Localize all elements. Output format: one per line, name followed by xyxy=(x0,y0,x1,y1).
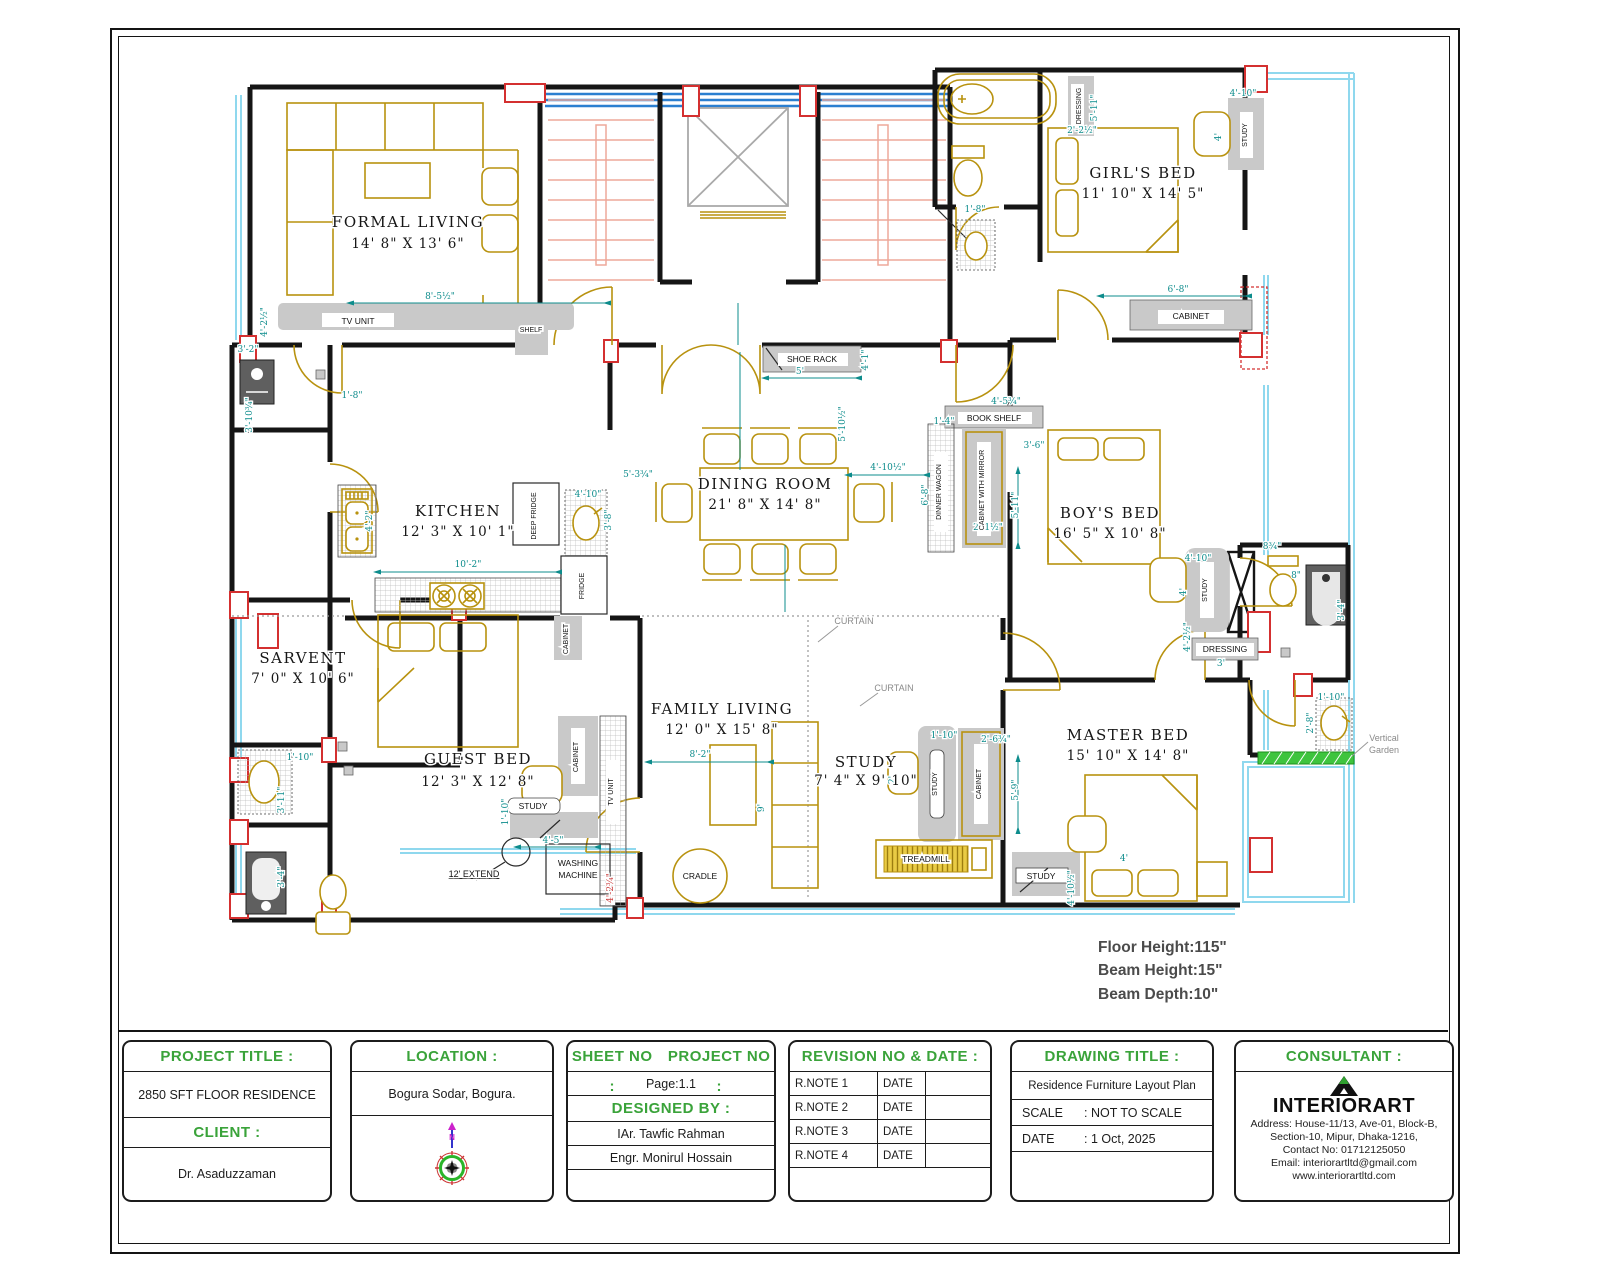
date-value: : 1 Oct, 2025 xyxy=(1084,1132,1156,1146)
svg-text:4'-10½": 4'-10½" xyxy=(1066,870,1077,906)
svg-text:TREADMILL: TREADMILL xyxy=(902,854,950,864)
brand-name: INTERIORART xyxy=(1273,1096,1415,1116)
staircase-right xyxy=(822,100,946,280)
svg-text:CABINET: CABINET xyxy=(563,623,570,654)
svg-text:4'-5": 4'-5" xyxy=(542,836,563,846)
consultant-heading: CONSULTANT : xyxy=(1236,1042,1452,1072)
svg-text:4'-1": 4'-1" xyxy=(861,349,871,370)
logo-interiorart: INTERIORART xyxy=(1236,1072,1452,1116)
svg-text:FRIDGE: FRIDGE xyxy=(579,572,586,599)
room-label-formal-living: FORMAL LIVING14' 8" X 13' 6" xyxy=(332,213,484,252)
svg-text:CABINET: CABINET xyxy=(976,768,983,799)
panel-project-title: PROJECT TITLE : 2850 SFT FLOOR RESIDENCE… xyxy=(122,1040,332,1202)
bed-guest xyxy=(378,615,518,747)
svg-text:10'-2": 10'-2" xyxy=(455,560,482,570)
study-desk-girls xyxy=(1194,98,1264,170)
svg-text:2'-6¾": 2'-6¾" xyxy=(981,734,1011,745)
lift xyxy=(688,108,788,218)
note-floor-height: Floor Height:115" xyxy=(1098,936,1398,959)
svg-text:MASTER BED: MASTER BED xyxy=(1067,726,1189,744)
svg-text:11' 10" X 14' 5": 11' 10" X 14' 5" xyxy=(1082,186,1205,202)
svg-text:SHELF: SHELF xyxy=(520,327,543,334)
drawing-title-value: Residence Furniture Layout Plan xyxy=(1012,1072,1212,1100)
svg-text:1'-10": 1'-10" xyxy=(287,753,314,763)
svg-text:SARVENT: SARVENT xyxy=(259,649,346,667)
svg-text:3'-6": 3'-6" xyxy=(1023,441,1044,451)
scale-value: : NOT TO SCALE xyxy=(1084,1106,1182,1120)
svg-text:Garden: Garden xyxy=(1369,745,1399,755)
designed-by-heading: DESIGNED BY : xyxy=(568,1096,774,1122)
svg-text:8'-2": 8'-2" xyxy=(689,750,710,760)
svg-text:CRADLE: CRADLE xyxy=(683,871,718,881)
sheet-no-heading: SHEET NO : xyxy=(568,1042,656,1071)
panel-drawing-title: DRAWING TITLE : Residence Furniture Layo… xyxy=(1010,1040,1214,1202)
svg-text:1'-10": 1'-10" xyxy=(1318,693,1345,703)
svg-text:1'-8": 1'-8" xyxy=(964,205,985,215)
svg-text:KITCHEN: KITCHEN xyxy=(415,502,501,520)
bed-boys xyxy=(1048,430,1160,564)
svg-text:4'-10": 4'-10" xyxy=(1230,89,1257,99)
svg-text:BOY'S BED: BOY'S BED xyxy=(1060,504,1160,522)
svg-text:5'-10½": 5'-10½" xyxy=(837,406,848,442)
panel-location: LOCATION : Bogura Sodar, Bogura. N xyxy=(350,1040,554,1202)
room-label-dining: DINING ROOM21' 8" X 14' 8" xyxy=(698,475,833,513)
svg-text:DRESSING: DRESSING xyxy=(1076,88,1083,125)
designer-1: IAr. Tawfic Rahman xyxy=(568,1122,774,1146)
svg-text:3'-11": 3'-11" xyxy=(277,787,287,814)
revision-row: R.NOTE 2 DATE xyxy=(790,1096,990,1120)
svg-text:4'-2": 4'-2" xyxy=(365,510,375,531)
svg-text:1'-8": 1'-8" xyxy=(341,391,362,401)
svg-text:21' 8" X 14' 8": 21' 8" X 14' 8" xyxy=(708,497,821,513)
svg-text:4'-5¾": 4'-5¾" xyxy=(991,396,1021,407)
svg-text:4': 4' xyxy=(1179,588,1189,596)
logo-triangle-icon xyxy=(1330,1076,1358,1096)
svg-text:DINNER WAGON: DINNER WAGON xyxy=(936,464,943,520)
consultant-address-2: Section-10, Mipur, Dhaka-1216, xyxy=(1236,1131,1452,1144)
svg-text:15' 10" X 14' 8": 15' 10" X 14' 8" xyxy=(1067,748,1190,764)
svg-text:3'-4": 3'-4" xyxy=(1337,599,1347,620)
designer-2: Engr. Monirul Hossain xyxy=(568,1146,774,1170)
svg-text:MACHINE: MACHINE xyxy=(558,870,598,880)
svg-text:7' 0" X 10' 6": 7' 0" X 10' 6" xyxy=(251,671,355,687)
svg-text:STUDY: STUDY xyxy=(835,753,897,771)
location-value: Bogura Sodar, Bogura. xyxy=(352,1072,552,1116)
svg-text:4'-10": 4'-10" xyxy=(1185,554,1212,564)
svg-text:DRESSING: DRESSING xyxy=(1203,644,1247,654)
location-heading: LOCATION : xyxy=(352,1042,552,1072)
room-label-kitchen: KITCHEN12' 3" X 10' 1" xyxy=(401,502,514,540)
svg-text:GUEST BED: GUEST BED xyxy=(424,750,532,768)
svg-text:CABINET: CABINET xyxy=(1173,311,1210,321)
svg-text:STUDY: STUDY xyxy=(1202,578,1209,602)
svg-text:8'-5½": 8'-5½" xyxy=(425,291,455,302)
svg-text:12' 3" X 10' 1": 12' 3" X 10' 1" xyxy=(401,524,514,540)
svg-text:6'-8": 6'-8" xyxy=(921,484,931,505)
svg-text:DEEP FRIDGE: DEEP FRIDGE xyxy=(531,492,538,540)
room-label-guest-bed: GUEST BED12' 3" X 12' 8" xyxy=(421,750,534,790)
svg-text:STUDY: STUDY xyxy=(932,772,939,796)
svg-text:STUDY: STUDY xyxy=(1242,123,1249,147)
svg-text:2'-8": 2'-8" xyxy=(1306,712,1316,733)
svg-text:TV UNIT: TV UNIT xyxy=(608,778,615,806)
svg-text:1'-4": 1'-4" xyxy=(933,417,954,427)
svg-text:3'-2": 3'-2" xyxy=(237,345,258,355)
svg-text:3'-10¾": 3'-10¾" xyxy=(244,397,255,433)
height-notes: Floor Height:115" Beam Height:15" Beam D… xyxy=(1098,936,1398,1006)
svg-text:CABINET: CABINET xyxy=(573,741,580,772)
svg-text:SHOE RACK: SHOE RACK xyxy=(787,354,837,364)
svg-text:5'-3¾": 5'-3¾" xyxy=(623,469,653,480)
panel-consultant: CONSULTANT : INTERIORART Address: House-… xyxy=(1234,1040,1454,1202)
svg-text:1'-10": 1'-10" xyxy=(931,731,958,741)
svg-text:Vertical: Vertical xyxy=(1369,733,1399,743)
sofa-formal-living xyxy=(287,103,518,310)
svg-text:7' 4" X 9' 10": 7' 4" X 9' 10" xyxy=(814,773,918,789)
compass-icon: N xyxy=(429,1122,475,1194)
svg-text:12' 3" X 12' 8": 12' 3" X 12' 8" xyxy=(421,774,534,790)
panel-sheet-no: SHEET NO : PROJECT NO : Page:1.1 DESIGNE… xyxy=(566,1040,776,1202)
svg-text:8¾": 8¾" xyxy=(1263,541,1282,552)
client-heading: CLIENT : xyxy=(124,1118,330,1148)
svg-text:FAMILY LIVING: FAMILY LIVING xyxy=(651,700,793,718)
floor-plan-canvas: 8'-5½" 4'-2½" 3'-2" 1'-8" 3'-10¾" 5'-3¾"… xyxy=(0,0,1600,1030)
panel-revision: REVISION NO & DATE : R.NOTE 1 DATE R.NOT… xyxy=(788,1040,992,1202)
bath-fixtures-left xyxy=(238,360,353,934)
project-title-value: 2850 SFT FLOOR RESIDENCE xyxy=(124,1072,330,1118)
svg-text:DINING ROOM: DINING ROOM xyxy=(698,475,833,493)
svg-text:4': 4' xyxy=(1120,854,1128,864)
svg-text:3': 3' xyxy=(1217,659,1225,669)
revision-row: R.NOTE 4 DATE xyxy=(790,1144,990,1168)
svg-text:12' EXTEND: 12' EXTEND xyxy=(449,869,500,879)
svg-text:WASHING: WASHING xyxy=(558,858,598,868)
svg-text:5'-9": 5'-9" xyxy=(1011,779,1021,800)
svg-text:1'-10": 1'-10" xyxy=(501,799,511,826)
revision-row: R.NOTE 1 DATE xyxy=(790,1072,990,1096)
project-no-heading: PROJECT NO : xyxy=(664,1042,774,1071)
svg-text:CURTAIN: CURTAIN xyxy=(834,616,873,626)
svg-text:4'-2¾": 4'-2¾" xyxy=(605,873,616,903)
svg-text:4'-2½": 4'-2½" xyxy=(259,307,270,337)
scale-label: SCALE xyxy=(1022,1106,1084,1120)
consultant-address-1: Address: House-11/13, Ave-01, Block-B, xyxy=(1236,1118,1452,1131)
svg-text:5'-11": 5'-11" xyxy=(1011,492,1021,519)
svg-text:4': 4' xyxy=(1214,133,1224,141)
svg-text:CURTAIN: CURTAIN xyxy=(874,683,913,693)
client-value: Dr. Asaduzzaman xyxy=(124,1148,330,1200)
consultant-address-4: Email: interiorartltd@gmail.com xyxy=(1236,1157,1452,1170)
svg-text:16' 5" X 10' 8": 16' 5" X 10' 8" xyxy=(1053,526,1166,542)
kitchen-counter xyxy=(375,578,561,612)
project-title-heading: PROJECT TITLE : xyxy=(124,1042,330,1072)
consultant-website: www.interiorartltd.com xyxy=(1236,1170,1452,1183)
svg-text:BOOK SHELF: BOOK SHELF xyxy=(967,413,1021,423)
svg-text:14' 8" X 13' 6": 14' 8" X 13' 6" xyxy=(351,236,464,252)
svg-text:2'-2½": 2'-2½" xyxy=(1067,125,1097,136)
consultant-address-3: Contact No: 01712125050 xyxy=(1236,1144,1452,1157)
svg-text:5': 5' xyxy=(796,367,804,377)
staircase-left xyxy=(548,100,654,280)
svg-text:3'-4": 3'-4" xyxy=(277,866,287,887)
svg-text:3'-8": 3'-8" xyxy=(604,509,614,530)
room-label-master-bed: MASTER BED15' 10" X 14' 8" xyxy=(1067,726,1190,764)
svg-text:FORMAL LIVING: FORMAL LIVING xyxy=(332,213,484,231)
svg-text:2'-1½": 2'-1½" xyxy=(973,522,1003,533)
date-label: DATE xyxy=(1022,1132,1084,1146)
svg-text:TV UNIT: TV UNIT xyxy=(341,316,374,326)
svg-text:12' 0" X 15' 8": 12' 0" X 15' 8" xyxy=(665,722,778,738)
svg-text:STUDY: STUDY xyxy=(1027,871,1056,881)
titleblock-divider xyxy=(118,1030,1448,1032)
room-label-family-living: FAMILY LIVING12' 0" X 15' 8" xyxy=(651,700,793,738)
svg-text:8": 8" xyxy=(1291,571,1301,581)
svg-text:GIRL'S BED: GIRL'S BED xyxy=(1089,164,1196,182)
revision-heading: REVISION NO & DATE : xyxy=(790,1042,990,1072)
note-beam-height: Beam Height:15" xyxy=(1098,959,1398,982)
toilet-boys-bath xyxy=(1268,556,1298,606)
revision-row: R.NOTE 3 DATE xyxy=(790,1120,990,1144)
room-label-boys-bed: BOY'S BED16' 5" X 10' 8" xyxy=(1053,504,1166,542)
svg-text:4'-10": 4'-10" xyxy=(575,490,602,500)
page-number: Page:1.1 xyxy=(568,1072,774,1096)
drawing-title-heading: DRAWING TITLE : xyxy=(1012,1042,1212,1072)
room-label-sarvent: SARVENT7' 0" X 10' 6" xyxy=(251,649,355,687)
room-label-girls-bed: GIRL'S BED11' 10" X 14' 5" xyxy=(1082,164,1205,202)
svg-text:N: N xyxy=(449,1133,455,1142)
svg-text:4'-2½": 4'-2½" xyxy=(1182,622,1193,652)
room-labels: FORMAL LIVING14' 8" X 13' 6" GIRL'S BED1… xyxy=(251,164,1204,790)
svg-text:CABINET WITH MIRROR: CABINET WITH MIRROR xyxy=(979,450,986,530)
svg-text:5'-11": 5'-11" xyxy=(1090,95,1100,122)
svg-text:STUDY: STUDY xyxy=(519,801,548,811)
svg-text:9': 9' xyxy=(757,804,767,812)
note-beam-depth: Beam Depth:10" xyxy=(1098,983,1398,1006)
svg-text:4'-10½": 4'-10½" xyxy=(870,462,906,473)
svg-text:6'-8": 6'-8" xyxy=(1167,285,1188,295)
